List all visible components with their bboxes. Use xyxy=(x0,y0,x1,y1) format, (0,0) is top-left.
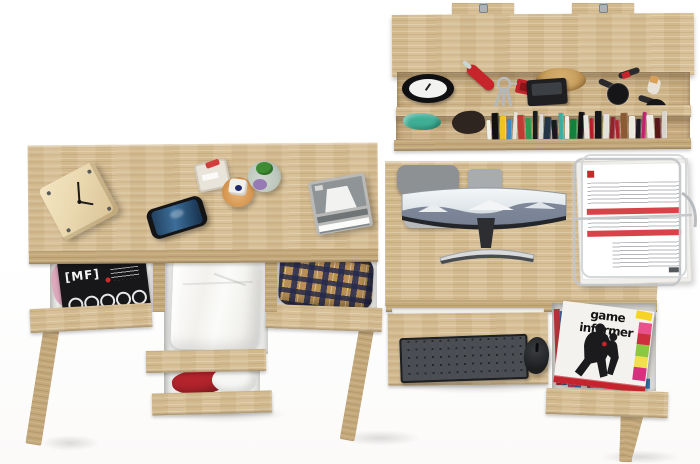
clock-screw xyxy=(87,169,92,174)
mount-hook-icon xyxy=(479,4,488,13)
perfume-gem xyxy=(235,185,242,191)
magazine-red-dot xyxy=(105,277,111,283)
left-desk-leg xyxy=(340,323,375,442)
compact-camera xyxy=(526,78,568,107)
left-desk-leg xyxy=(25,325,60,446)
teal-cloth xyxy=(403,113,441,130)
curved-monitor xyxy=(398,182,570,270)
shelf-top-board xyxy=(392,13,694,77)
alarm-clock-hand xyxy=(425,83,431,91)
perfume-bottle-green xyxy=(248,161,281,192)
clock-center-pin xyxy=(77,199,82,204)
right-drawer-front xyxy=(546,388,669,418)
alarm-clock-face xyxy=(409,79,447,98)
mount-hook-icon xyxy=(599,4,608,13)
scene-product-photo: [MF] xyxy=(0,0,700,464)
magazine-mf-title: [MF] xyxy=(64,266,101,284)
letter-tray-stack xyxy=(308,172,374,235)
shirt-fold-line xyxy=(214,273,247,287)
folded-white-shirt xyxy=(170,256,261,351)
mouse-scroll xyxy=(535,343,539,352)
alarm-clock xyxy=(402,74,454,103)
clock-screw xyxy=(66,228,71,233)
floor-shadow xyxy=(40,435,100,451)
drawer-middle-interior xyxy=(164,252,268,354)
perfume-purple-glass xyxy=(253,179,267,190)
keyboard xyxy=(399,334,528,383)
left-desk-front-edge xyxy=(29,249,378,264)
floor-shadow xyxy=(600,450,680,464)
perfume-green-cap xyxy=(256,162,273,175)
monitor-stand-neck xyxy=(477,218,495,248)
drawer-front xyxy=(266,304,383,332)
magazine-text-lines xyxy=(110,266,139,281)
drawer-front xyxy=(29,303,152,333)
drawer-front xyxy=(146,349,266,373)
wire-frame xyxy=(570,153,698,293)
perfume-label xyxy=(202,172,219,181)
gameinformer-cover: game informer xyxy=(553,301,654,394)
phone-screen-glow xyxy=(169,208,185,220)
drawer-front xyxy=(152,390,273,415)
shelf-bottom-edge xyxy=(394,138,691,151)
camera-top-plate xyxy=(531,82,562,96)
clock-screw xyxy=(106,206,111,211)
clock-screw xyxy=(46,191,51,196)
cover-figures xyxy=(564,318,633,383)
